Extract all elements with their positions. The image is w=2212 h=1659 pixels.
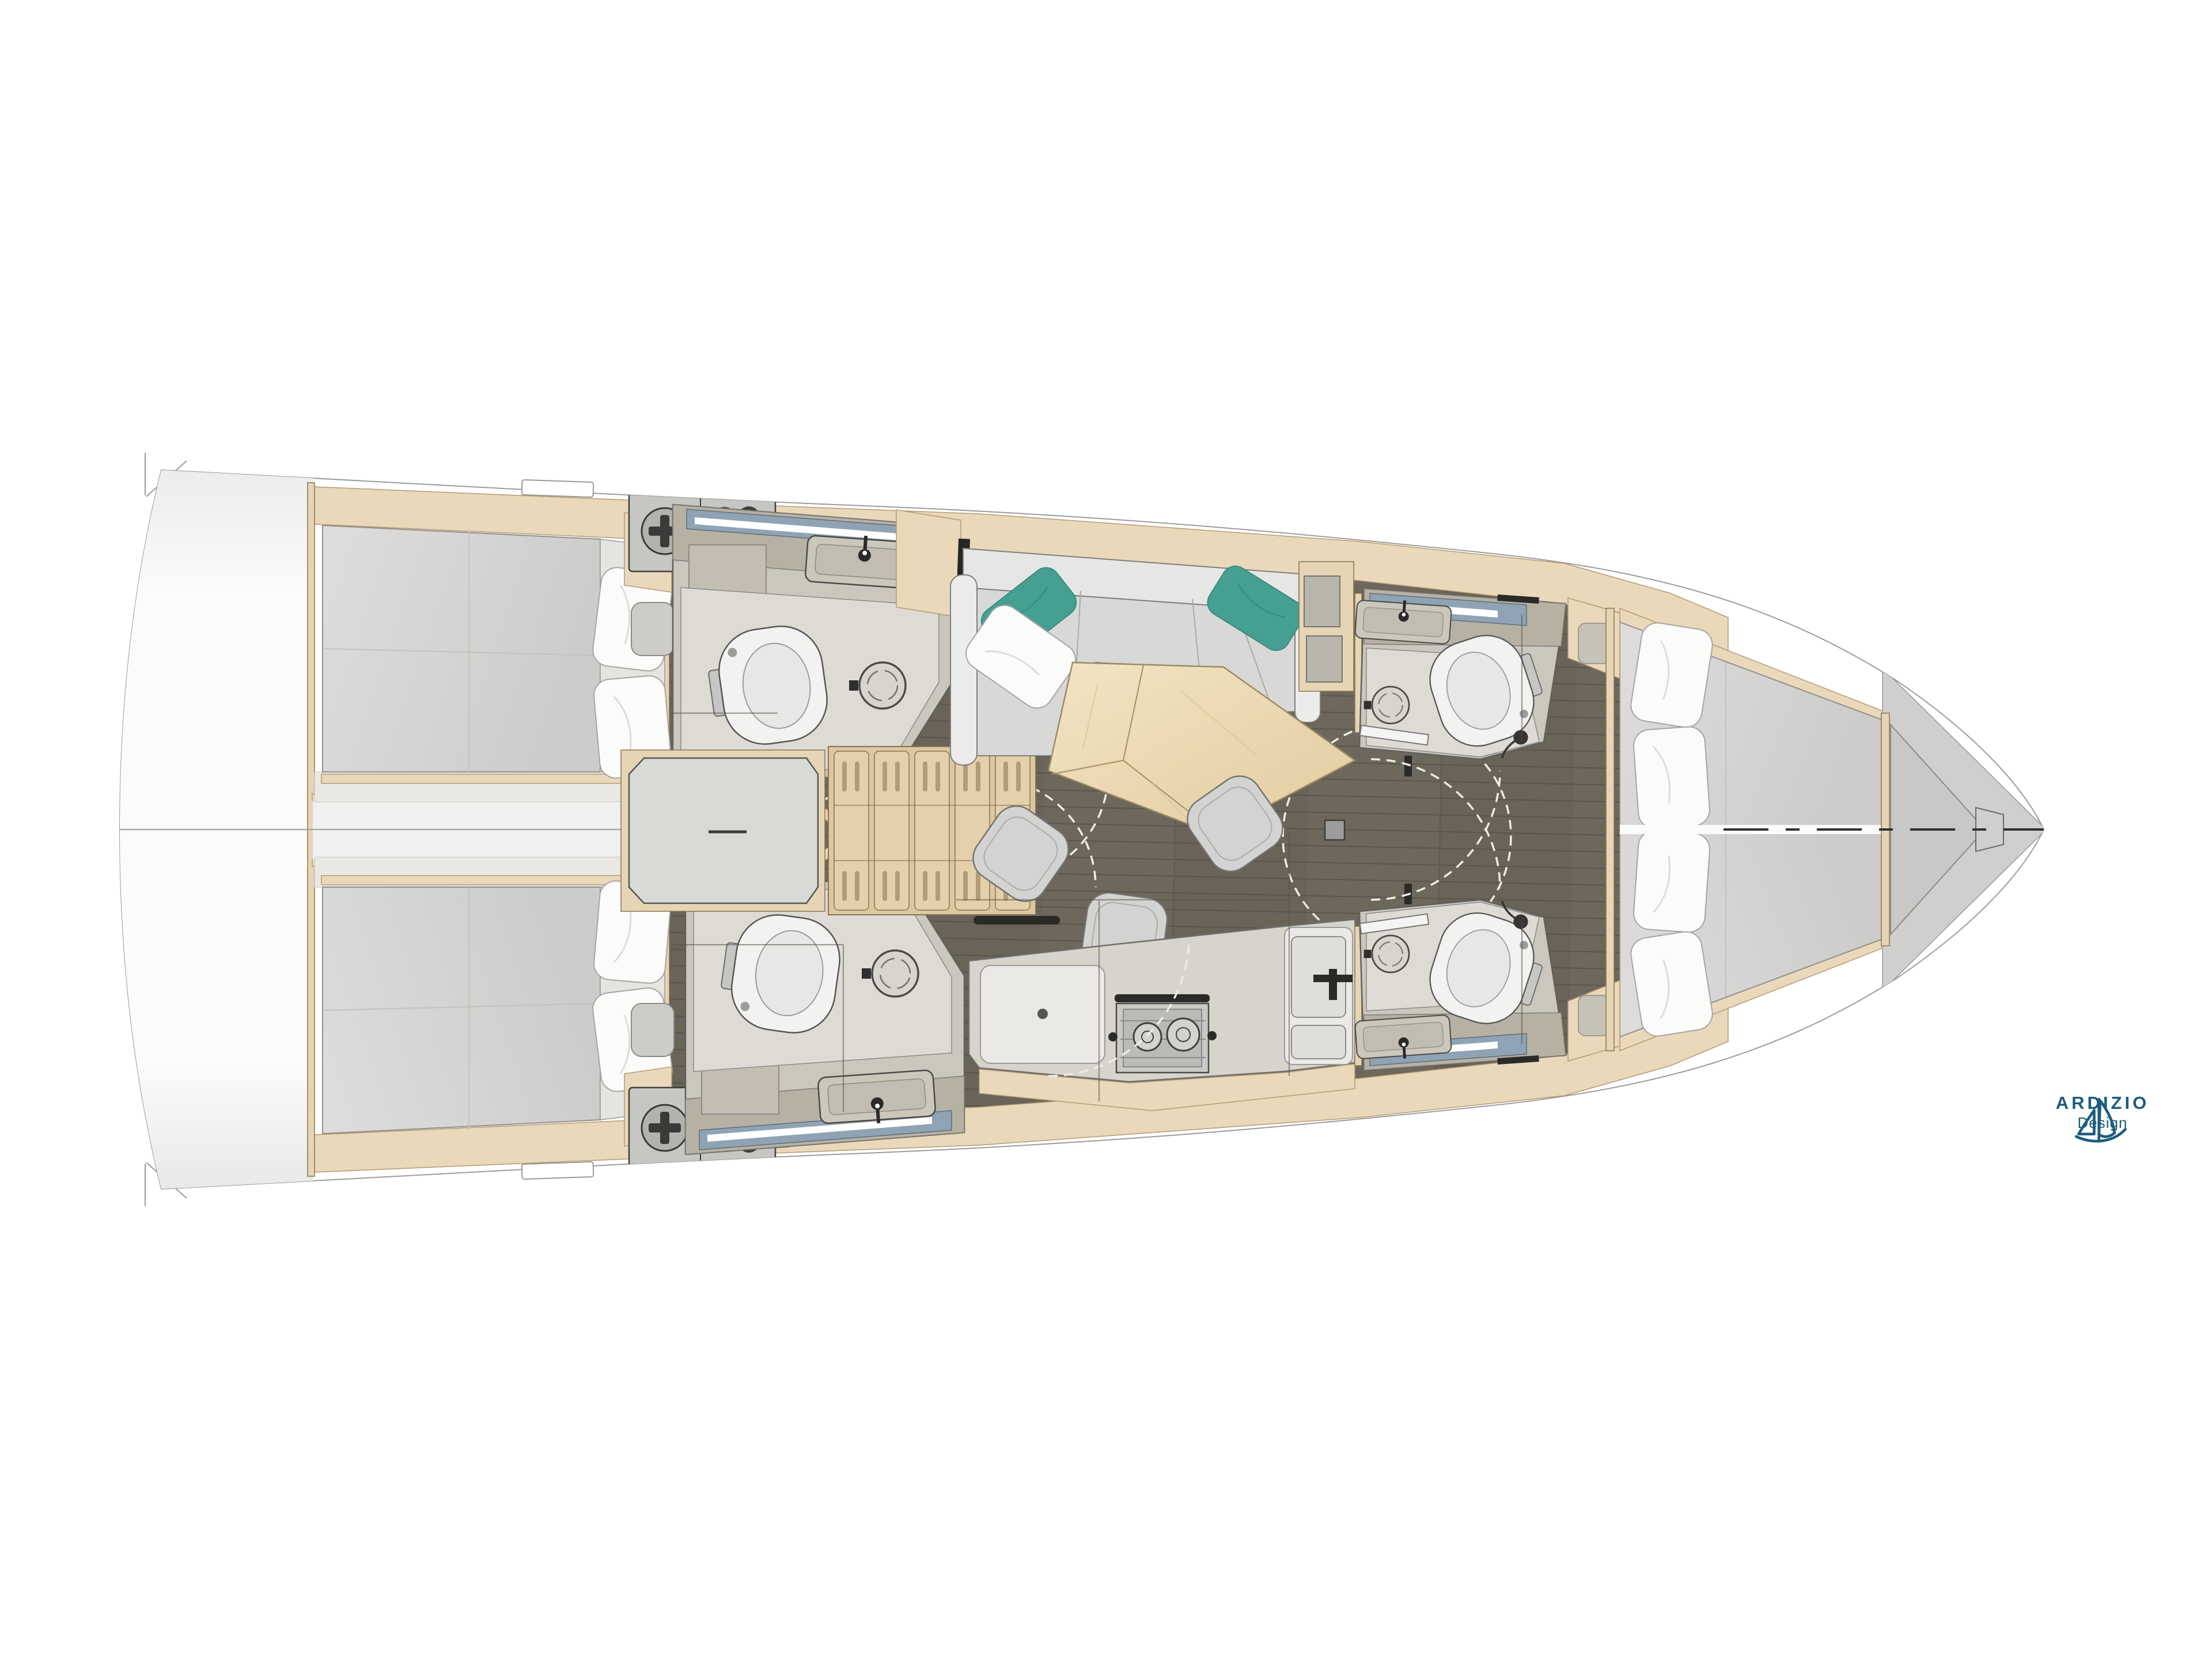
sailboat-icon (2073, 1093, 2133, 1153)
door-handle (1404, 756, 1412, 777)
yacht-floorplan: ARDIZIO Design (0, 0, 2212, 1659)
aft-cabin-starboard (315, 857, 674, 1146)
designer-logo: ARDIZIO Design (2042, 1093, 2163, 1132)
grab-handle (974, 916, 1060, 925)
deck-hatch (522, 1162, 594, 1179)
aft-cabin-port (315, 513, 674, 802)
floorplan-drawing (0, 0, 2212, 1659)
galley-stove (1108, 994, 1217, 1073)
mast-post (1325, 820, 1344, 840)
forward-cabinet (1299, 562, 1354, 691)
forward-head-port (1355, 589, 1566, 759)
forward-head-starboard (1355, 900, 1566, 1070)
forward-bulkhead (1606, 608, 1614, 1051)
galley-sink-unit (1285, 927, 1353, 1065)
deck-hatch (522, 480, 594, 497)
